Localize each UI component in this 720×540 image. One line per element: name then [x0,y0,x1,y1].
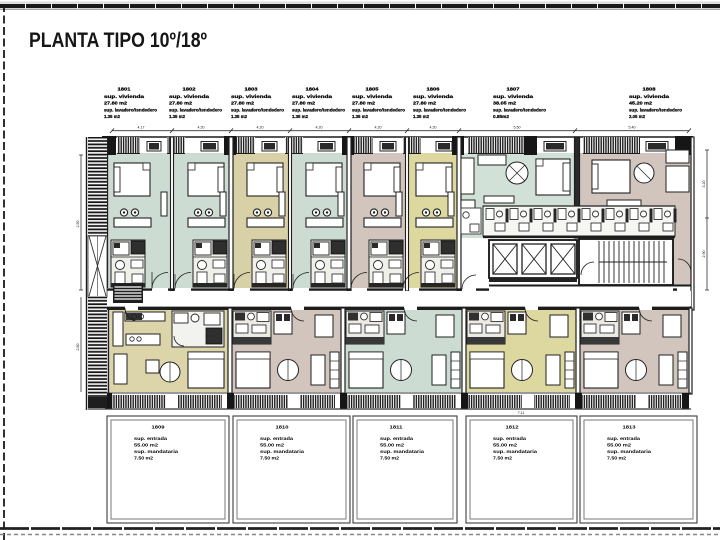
svg-text:1801: 1801 [118,87,132,92]
svg-text:1.35 m2: 1.35 m2 [413,114,429,119]
svg-text:sup. entrada: sup. entrada [493,436,527,441]
svg-text:27.80 m2: 27.80 m2 [292,101,316,106]
svg-text:PLANTA TIPO 10º/18º: PLANTA TIPO 10º/18º [29,29,207,52]
svg-text:1811: 1811 [390,425,404,430]
svg-text:5.40: 5.40 [629,126,636,130]
svg-text:1804: 1804 [306,87,320,92]
svg-text:sup. lavadero/tendedero: sup. lavadero/tendedero [292,108,345,113]
svg-text:2.50: 2.50 [76,221,80,228]
svg-text:sup. vivienda: sup. vivienda [352,94,393,99]
svg-text:1.35 m2: 1.35 m2 [352,114,368,119]
svg-text:55.00 m2: 55.00 m2 [380,443,405,448]
svg-text:4.20: 4.20 [375,126,382,130]
svg-text:27.80 m2: 27.80 m2 [104,101,128,106]
svg-text:27.80 m2: 27.80 m2 [352,101,376,106]
svg-text:4.20: 4.20 [430,126,437,130]
svg-text:0.85m2: 0.85m2 [493,114,510,119]
svg-text:4.20: 4.20 [316,126,323,130]
svg-text:1810: 1810 [276,425,290,430]
svg-text:1812: 1812 [506,425,520,430]
svg-text:1803: 1803 [245,87,259,92]
svg-text:5.50: 5.50 [514,126,521,130]
svg-text:2.90: 2.90 [702,251,706,258]
svg-text:38.05 m2: 38.05 m2 [493,101,517,106]
svg-text:sup. lavadero/tendedero: sup. lavadero/tendedero [352,108,405,113]
svg-text:55.00 m2: 55.00 m2 [260,443,285,448]
svg-text:4.20: 4.20 [198,126,205,130]
svg-text:sup. lavadero/tendedero: sup. lavadero/tendedero [104,108,157,113]
svg-text:7.50 m2: 7.50 m2 [380,456,400,461]
svg-text:3.20: 3.20 [702,181,706,188]
svg-text:1806: 1806 [427,87,441,92]
svg-text:7.50 m2: 7.50 m2 [134,456,154,461]
svg-text:2.80: 2.80 [76,344,80,351]
svg-text:27.80 m2: 27.80 m2 [413,101,437,106]
svg-text:7.50 m2: 7.50 m2 [493,456,513,461]
svg-text:7.50 m2: 7.50 m2 [260,456,280,461]
svg-text:7.11: 7.11 [518,411,525,415]
svg-text:1809: 1809 [152,425,166,430]
svg-text:27.80 m2: 27.80 m2 [231,101,255,106]
svg-text:2.05 m2: 2.05 m2 [629,114,645,119]
svg-text:sup. vivienda: sup. vivienda [292,94,333,99]
svg-text:sup. entrada: sup. entrada [380,436,414,441]
svg-text:sup. mandataria: sup. mandataria [260,449,305,454]
svg-text:sup. vivienda: sup. vivienda [169,94,210,99]
svg-text:sup. lavadero/tendedero: sup. lavadero/tendedero [629,108,682,113]
svg-text:sup. entrada: sup. entrada [134,436,168,441]
svg-text:sup. lavadero/tendedero: sup. lavadero/tendedero [493,108,546,113]
svg-text:sup. lavadero/tendedero: sup. lavadero/tendedero [413,108,466,113]
svg-text:1805: 1805 [366,87,380,92]
svg-text:55.00 m2: 55.00 m2 [607,443,632,448]
svg-text:1.35 m2: 1.35 m2 [169,114,185,119]
svg-text:sup. vivienda: sup. vivienda [413,94,454,99]
svg-text:sup. lavadero/tendedero: sup. lavadero/tendedero [169,108,222,113]
svg-text:sup. lavadero/tendedero: sup. lavadero/tendedero [231,108,284,113]
svg-text:7.50 m2: 7.50 m2 [607,456,627,461]
svg-text:1807: 1807 [507,87,521,92]
svg-text:1.35 m2: 1.35 m2 [231,114,247,119]
svg-text:sup. mandataria: sup. mandataria [380,449,425,454]
svg-text:sup. vivienda: sup. vivienda [231,94,272,99]
svg-text:55.00 m2: 55.00 m2 [493,443,518,448]
svg-text:45.20 m2: 45.20 m2 [629,101,653,106]
svg-text:sup. mandataria: sup. mandataria [493,449,538,454]
svg-text:55.00 m2: 55.00 m2 [134,443,159,448]
svg-text:4.20: 4.20 [257,126,264,130]
svg-text:sup. entrada: sup. entrada [607,436,641,441]
svg-text:sup. mandataria: sup. mandataria [134,449,179,454]
svg-text:sup. vivienda: sup. vivienda [629,94,670,99]
svg-text:1802: 1802 [183,87,197,92]
svg-text:1813: 1813 [623,425,637,430]
svg-text:1.35 m2: 1.35 m2 [104,114,120,119]
svg-text:1808: 1808 [643,87,657,92]
svg-text:sup. entrada: sup. entrada [260,436,294,441]
svg-text:sup. mandataria: sup. mandataria [607,449,652,454]
svg-text:sup. vivienda: sup. vivienda [493,94,534,99]
svg-text:27.80 m2: 27.80 m2 [169,101,193,106]
svg-text:4.17: 4.17 [138,126,145,130]
svg-text:1.35 m2: 1.35 m2 [292,114,308,119]
svg-text:sup. vivienda: sup. vivienda [104,94,145,99]
